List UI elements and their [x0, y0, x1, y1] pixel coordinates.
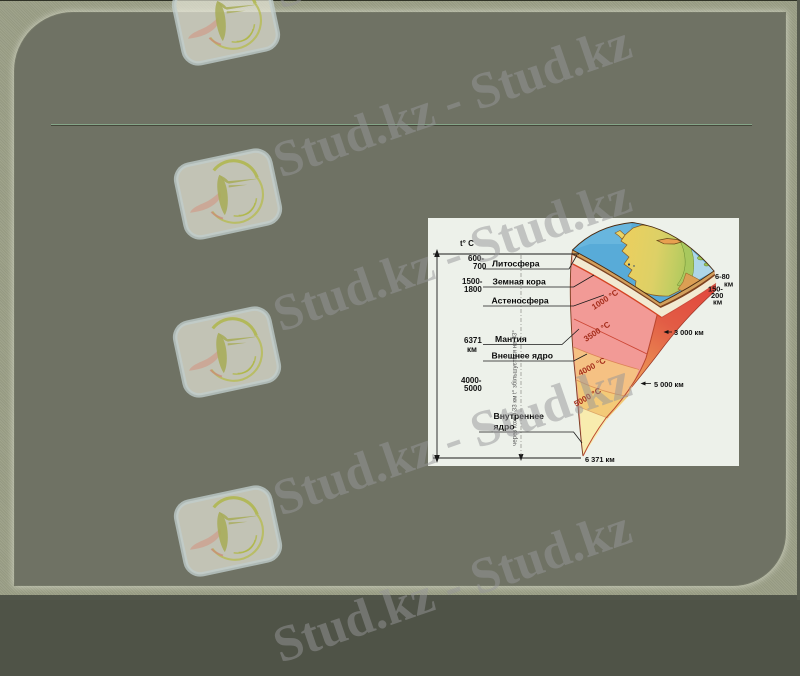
- svg-text:Мантия: Мантия: [495, 334, 527, 344]
- svg-text:1800: 1800: [464, 285, 482, 294]
- svg-text:5000: 5000: [464, 384, 482, 393]
- svg-text:6 371 км: 6 371 км: [585, 455, 615, 464]
- svg-text:5 000 км: 5 000 км: [654, 380, 684, 389]
- svg-text:км: км: [724, 280, 733, 289]
- svg-text:км: км: [713, 298, 722, 307]
- svg-text:3 000 км: 3 000 км: [674, 328, 704, 337]
- svg-text:6371: 6371: [464, 336, 482, 345]
- svg-text:км: км: [467, 345, 477, 354]
- svg-text:Земная кора: Земная кора: [493, 277, 546, 287]
- svg-text:Внешнее ядро: Внешнее ядро: [492, 351, 553, 361]
- svg-text:Астеносфера: Астеносфера: [492, 296, 549, 306]
